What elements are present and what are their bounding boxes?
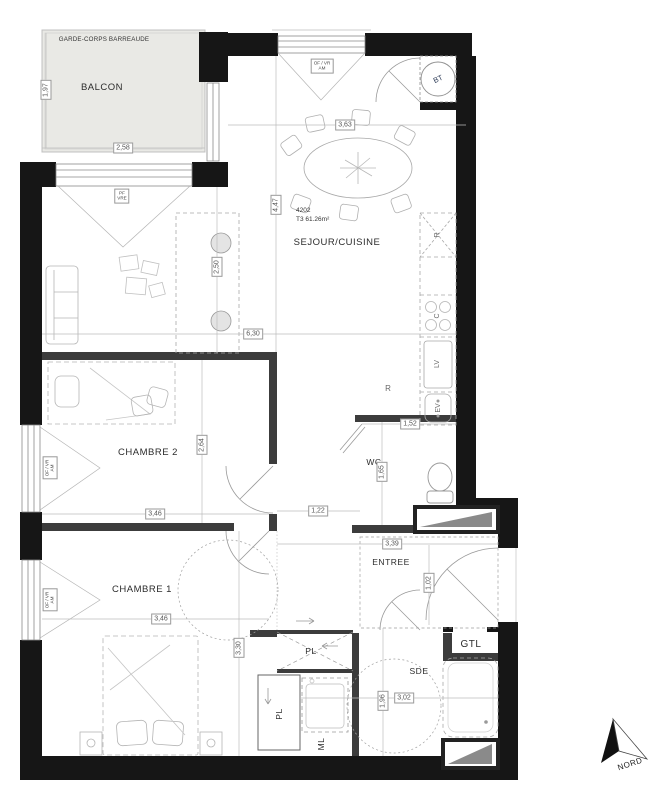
unit-area: T3 61.26m² [296, 216, 329, 224]
living-window-label: OF / VR AM [311, 59, 334, 74]
balcony-door-window [56, 164, 192, 186]
dim-bedroom1-width: 3,46 [151, 614, 171, 625]
balcony-label: BALCON [81, 83, 123, 93]
dim-bedroom1-depth: 3,30 [234, 638, 245, 658]
bedroom1-label: CHAMBRE 1 [112, 585, 172, 595]
living-sketch-furniture [119, 255, 165, 298]
balcony-door-label: PF VRE [114, 189, 129, 204]
bedroom1-window [22, 560, 40, 640]
washer-label: ML [316, 738, 326, 751]
dim-wc-width: 1,52 [400, 419, 420, 430]
toilet [427, 463, 453, 503]
entry-label: ENTREE [372, 557, 409, 567]
dim-island: 2,50 [212, 257, 223, 277]
shower [443, 658, 498, 737]
dim-entry-width: 3,39 [382, 539, 402, 550]
kitchen-counter [420, 213, 456, 425]
dim-living-width: 6,30 [243, 329, 263, 340]
dim-balcony-depth: 1,97 [41, 80, 52, 100]
dim-sde-depth: 1,96 [378, 691, 389, 711]
dim-sde-width: 3,02 [394, 693, 414, 704]
bedroom2-label: CHAMBRE 2 [118, 448, 178, 458]
sofa [46, 266, 78, 344]
closet-cross-label: PL [305, 646, 316, 656]
washing-machine [302, 678, 348, 732]
dim-living-height: 4,47 [271, 195, 282, 215]
balcony-railing-label: GARDE-CORPS BARREAUDE [59, 35, 150, 45]
bedroom1-window-label: OF / VR AM [43, 589, 58, 612]
bedroom2-furniture [48, 362, 175, 424]
dim-bedroom2-width: 3,46 [145, 509, 165, 520]
bedroom1-furniture [80, 636, 222, 755]
dim-living-top: 3,63 [335, 120, 355, 131]
plan-drawing [0, 0, 663, 800]
dim-hall-width: 1,22 [308, 506, 328, 517]
floor-plan: GARDE-CORPS BARREAUDE BALCON 1,97 2,58 O… [0, 0, 663, 800]
dim-entry-depth: 1,02 [424, 573, 435, 593]
balcony-slab [42, 30, 205, 152]
gtl-label: GTL [461, 640, 482, 650]
dim-wc-depth: 1,65 [377, 462, 388, 482]
closet-vertical-label: PL [274, 708, 284, 719]
partition-walls [42, 352, 498, 756]
dim-balcony-width: 2,58 [113, 143, 133, 154]
wc-door [340, 424, 362, 450]
kitchen-island [176, 213, 239, 353]
dim-bedroom2-depth: 2,64 [197, 435, 208, 455]
shower-room-label: SDE [410, 666, 429, 676]
fridge-free-label: R [385, 384, 391, 394]
unit-number: 4202 [296, 207, 310, 215]
hob-label: C [433, 313, 443, 318]
bedroom2-window [22, 425, 40, 512]
sink-label: EV [434, 403, 444, 412]
shafts [415, 507, 498, 768]
fridge-label: R [433, 232, 443, 237]
dishwasher-label: LV [433, 360, 443, 368]
bedroom2-window-label: OF / VR AM [43, 457, 58, 480]
living-label: SEJOUR/CUISINE [294, 238, 381, 248]
